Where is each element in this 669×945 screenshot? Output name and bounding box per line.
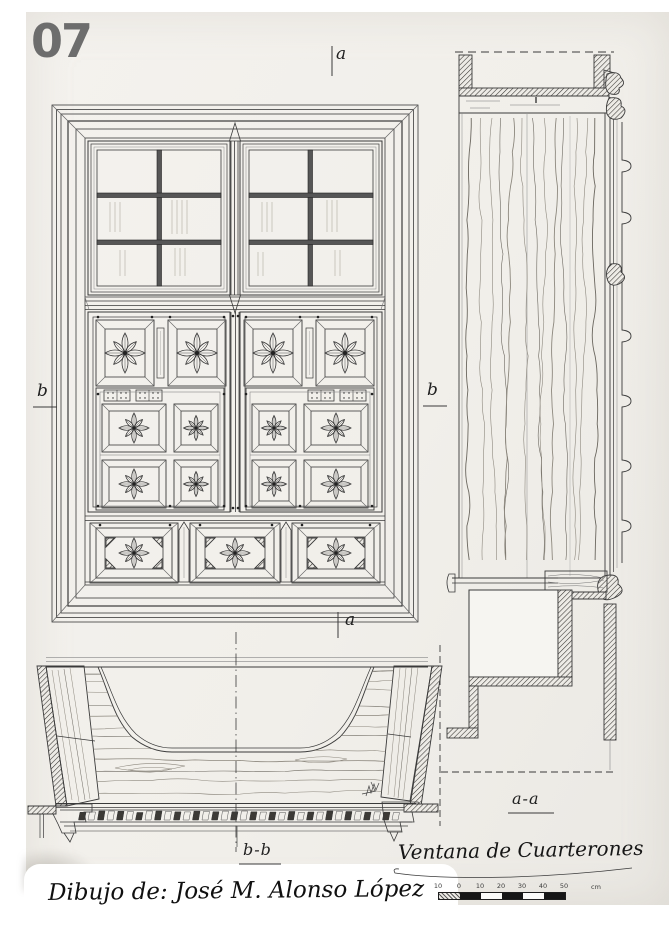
scale-segment [439, 893, 460, 899]
section-mark-b-left: b [37, 381, 48, 401]
section-label-aa: a-a [512, 789, 539, 808]
scale-segment [544, 893, 565, 899]
drawing-title: Ventana de Cuarterones [398, 836, 644, 864]
credit-caption: Dibujo de: José M. Alonso López [48, 876, 424, 906]
scale-tick-label: 10 [434, 882, 442, 890]
scale-tick-label: 40 [539, 882, 547, 890]
scale-segment [502, 893, 523, 899]
front-elevation-drawing [52, 105, 418, 622]
scale-segment [460, 893, 481, 899]
page-number: 07 [31, 14, 91, 68]
scale-tick-label: 0 [457, 882, 461, 890]
scanned-drawing-page: 07 a a b b a-a b-b Ventana de Cuarterone… [0, 0, 669, 945]
scale-bar-segments [438, 892, 566, 900]
scale-segment [481, 893, 502, 899]
section-mark-a-top: a [336, 44, 346, 64]
vertical-section-drawing [440, 52, 631, 826]
scale-bar: 10 0 10 20 30 40 50 cm [433, 882, 618, 904]
technical-drawing-svg [0, 0, 669, 945]
section-mark-a-bottom: a [345, 610, 355, 630]
section-label-bb: b-b [243, 840, 272, 859]
scale-segment [523, 893, 544, 899]
plan-section-drawing [28, 632, 442, 852]
scale-tick-label: 30 [518, 882, 526, 890]
section-mark-b-right: b [427, 380, 438, 400]
scale-tick-label: 10 [476, 882, 484, 890]
section-mark-lines [33, 46, 632, 878]
scale-unit-label: cm [591, 883, 601, 891]
scale-tick-label: 50 [560, 882, 568, 890]
scale-tick-label: 20 [497, 882, 505, 890]
